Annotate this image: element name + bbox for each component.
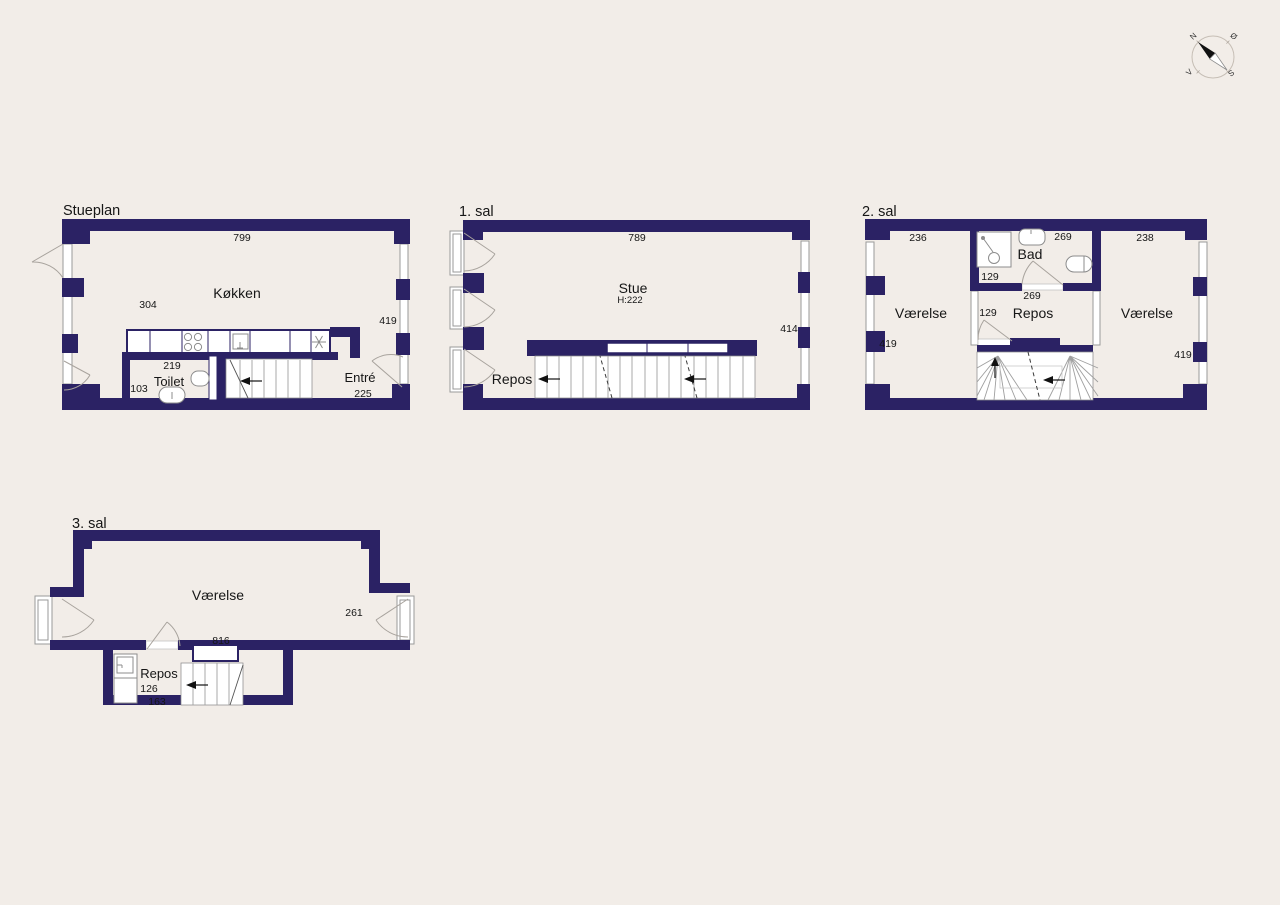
door-arc <box>464 289 495 327</box>
dim-toilet-depth: 103 <box>130 383 148 395</box>
dim-top-width: 799 <box>233 232 251 244</box>
floor-title: Stueplan <box>63 203 120 219</box>
door-threshold <box>978 339 1011 346</box>
stairs <box>535 356 755 398</box>
compass-east-label: Ø <box>1228 31 1239 42</box>
dim-repos-depth: 163 <box>148 696 166 708</box>
toilet-icon <box>1066 256 1092 272</box>
door-arc <box>464 349 495 387</box>
dim-left-room-width: 236 <box>909 232 927 244</box>
floor-plan-sheet: Stueplan 799 Køkken 304 419 219 Toilet 1… <box>0 0 1280 905</box>
door-arc <box>978 320 1012 341</box>
room-label-repos: Repos <box>492 371 532 387</box>
dim-repos-door-width: 129 <box>979 307 997 319</box>
dim-right-depth: 419 <box>1174 349 1192 361</box>
kitchen-counter <box>127 330 330 353</box>
room-label-repos: Repos <box>140 666 178 681</box>
door-arc <box>32 244 63 278</box>
room-label-room: Værelse <box>192 587 244 603</box>
room-ceiling-height: H:222 <box>617 295 642 306</box>
partition-wall <box>1093 291 1100 345</box>
room-label-left: Værelse <box>895 305 947 321</box>
window <box>400 244 408 384</box>
compass-north-label: N <box>1188 31 1198 42</box>
door-arc <box>372 355 403 387</box>
shower-icon <box>977 232 1011 267</box>
dim-right-depth: 414 <box>780 323 798 335</box>
floor-title: 3. sal <box>72 516 107 532</box>
floor-plan-second: 2. sal 236 238 269 Bad 129 269 129 Repos… <box>862 204 1207 410</box>
floor-title: 2. sal <box>862 204 897 220</box>
room-label-repos: Repos <box>1013 305 1053 321</box>
toilet-icon <box>159 387 185 403</box>
washbasin-icon <box>191 371 209 386</box>
landing-railing <box>607 343 728 353</box>
dim-right-depth: 419 <box>379 315 397 327</box>
dim-top-width: 789 <box>628 232 646 244</box>
floor-plan-first: 1. sal 789 Stue H:222 414 Repos <box>450 204 810 410</box>
window <box>866 242 874 384</box>
floor-plan-ground: Stueplan 799 Køkken 304 419 219 Toilet 1… <box>32 203 410 410</box>
dim-right-room-width: 238 <box>1136 232 1154 244</box>
door-leaf <box>209 356 217 400</box>
stairs <box>977 352 1098 400</box>
sink-cabinet-icon <box>114 654 137 703</box>
door-arc <box>62 599 94 637</box>
room-label-toilet: Toilet <box>154 374 185 389</box>
window <box>1199 242 1207 384</box>
dim-right-depth: 261 <box>345 607 363 619</box>
compass-icon: N Ø S V <box>1184 31 1239 79</box>
dim-toilet-width: 219 <box>163 360 181 372</box>
room-label-entry: Entré <box>344 370 375 385</box>
washbasin-icon <box>1019 229 1045 245</box>
dim-repos-width: 269 <box>1023 290 1041 302</box>
roof-window <box>193 645 238 661</box>
room-label-living: Stue <box>619 280 648 296</box>
room-label-right: Værelse <box>1121 305 1173 321</box>
dim-kitchen-depth: 304 <box>139 299 157 311</box>
compass-south-label: S <box>1226 68 1236 78</box>
door-arc <box>1022 261 1063 285</box>
partition-wall <box>971 291 978 345</box>
dim-bath-width: 269 <box>1054 231 1072 243</box>
door-threshold <box>146 641 178 649</box>
dim-entry-width: 225 <box>354 388 372 400</box>
stairs <box>226 359 312 398</box>
compass-west-label: V <box>1184 67 1195 78</box>
dim-repos-width: 126 <box>140 683 158 695</box>
room-label-bath: Bad <box>1018 246 1043 262</box>
floor-title: 1. sal <box>459 204 494 220</box>
stairs <box>181 663 243 705</box>
floor-plan-third: 3. sal Værelse 261 816 Repos 126 163 <box>35 516 414 708</box>
dim-bath-depth: 129 <box>981 271 999 283</box>
room-label-kitchen: Køkken <box>213 285 260 301</box>
dim-room-width: 816 <box>212 635 230 647</box>
dim-left-depth: 419 <box>879 338 897 350</box>
